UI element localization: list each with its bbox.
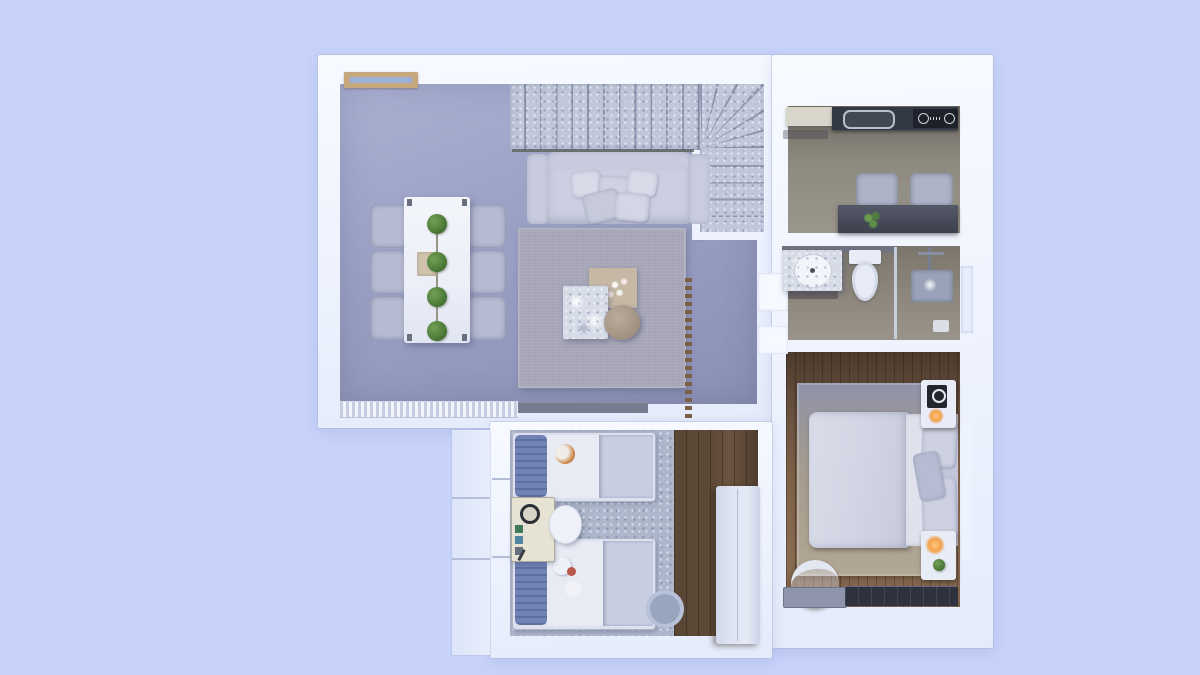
table-planter[interactable]: [427, 321, 447, 341]
table-leg: [407, 199, 412, 206]
burner-icon: [918, 113, 929, 124]
kids-door-seam: [492, 556, 510, 558]
kids-bed[interactable]: [512, 432, 656, 502]
staircase-landing-edge: [692, 232, 764, 240]
shower-pipe: [928, 247, 931, 270]
burner-icon: [944, 113, 955, 124]
exterior-door-panel[interactable]: [452, 430, 490, 655]
nightstand[interactable]: [921, 380, 956, 428]
table-leg: [462, 334, 467, 341]
louvered-floor-vent[interactable]: [340, 401, 518, 418]
dining-chair[interactable]: [468, 204, 506, 248]
plush-toy: [555, 444, 575, 464]
shower-bar: [918, 252, 944, 255]
door-panel-seam: [452, 497, 490, 499]
table-leg: [462, 199, 467, 206]
shower-panel[interactable]: [911, 270, 953, 302]
range-hood-shadow: [783, 130, 828, 139]
nightstand-plant: [933, 559, 945, 571]
kitchen-counter[interactable]: [832, 107, 958, 130]
kitchen-side-cabinet[interactable]: [786, 107, 832, 126]
dining-chair[interactable]: [370, 204, 408, 248]
marble-coffee-table[interactable]: [563, 286, 608, 339]
kitchen-table[interactable]: [838, 205, 958, 233]
shower-glass-partition[interactable]: [894, 247, 897, 339]
staircase-winder-corner[interactable]: [700, 84, 764, 150]
dining-chair[interactable]: [468, 250, 506, 294]
toy-tile: [515, 536, 523, 544]
bedside-lamp-glow: [925, 535, 945, 555]
table-planter[interactable]: [427, 287, 447, 307]
round-pouf[interactable]: [604, 305, 640, 340]
table-planter[interactable]: [427, 214, 447, 234]
window-glass: [350, 77, 412, 83]
dining-chair[interactable]: [370, 250, 408, 294]
bathroom-vanity[interactable]: [782, 250, 842, 291]
kitchen-sink: [843, 110, 895, 129]
sofa-arm-right: [688, 154, 710, 224]
floor-drain: [933, 320, 949, 332]
dining-table[interactable]: [404, 197, 470, 343]
kids-wardrobe[interactable]: [716, 486, 760, 644]
bathroom-window[interactable]: [961, 266, 973, 333]
kids-round-rug[interactable]: [646, 590, 684, 628]
dining-chair[interactable]: [370, 296, 408, 340]
staircase-upper-run[interactable]: [510, 84, 700, 150]
speaker-ring: [932, 389, 946, 403]
vanity-base-shadow: [788, 291, 838, 299]
kids-bed-pillow: [515, 435, 547, 497]
shower-glint: [923, 278, 937, 292]
double-bed[interactable]: [809, 412, 909, 548]
floorplan-render: [0, 0, 1200, 675]
dining-chair[interactable]: [468, 296, 506, 340]
table-planter[interactable]: [427, 252, 447, 272]
bedroom-window[interactable]: [962, 410, 972, 560]
kids-door-seam: [492, 478, 510, 480]
cooktop-controls: [930, 117, 942, 120]
window-frame-wood[interactable]: [344, 72, 418, 88]
media-bench[interactable]: [518, 402, 648, 413]
wardrobe-seam: [737, 489, 738, 641]
bedroom-bench[interactable]: [783, 587, 847, 608]
nightstand[interactable]: [921, 531, 956, 580]
kids-bed-sheet: [547, 435, 599, 498]
kitchen-chair[interactable]: [910, 173, 953, 207]
door-opening-bedroom[interactable]: [758, 326, 788, 354]
table-leg: [407, 334, 412, 341]
kitchen-plant: [860, 210, 884, 230]
sofa-arm-left: [527, 154, 549, 224]
toy-stove-ring: [520, 504, 540, 524]
toy-accent: [567, 567, 576, 576]
plush-toy: [565, 581, 581, 597]
bedroom-dresser[interactable]: [845, 586, 958, 606]
kids-round-table[interactable]: [549, 505, 582, 544]
kitchen-chair[interactable]: [856, 173, 898, 207]
cooktop: [913, 109, 958, 128]
basin-drain: [810, 268, 815, 273]
kids-play-cabinet[interactable]: [511, 497, 555, 562]
toy-tile: [515, 525, 523, 533]
sofa-pillow: [614, 192, 650, 223]
kids-bed-blanket: [599, 435, 653, 498]
bedside-lamp-glow: [928, 408, 944, 424]
slatted-room-divider[interactable]: [685, 278, 692, 418]
door-panel-seam: [452, 558, 490, 560]
